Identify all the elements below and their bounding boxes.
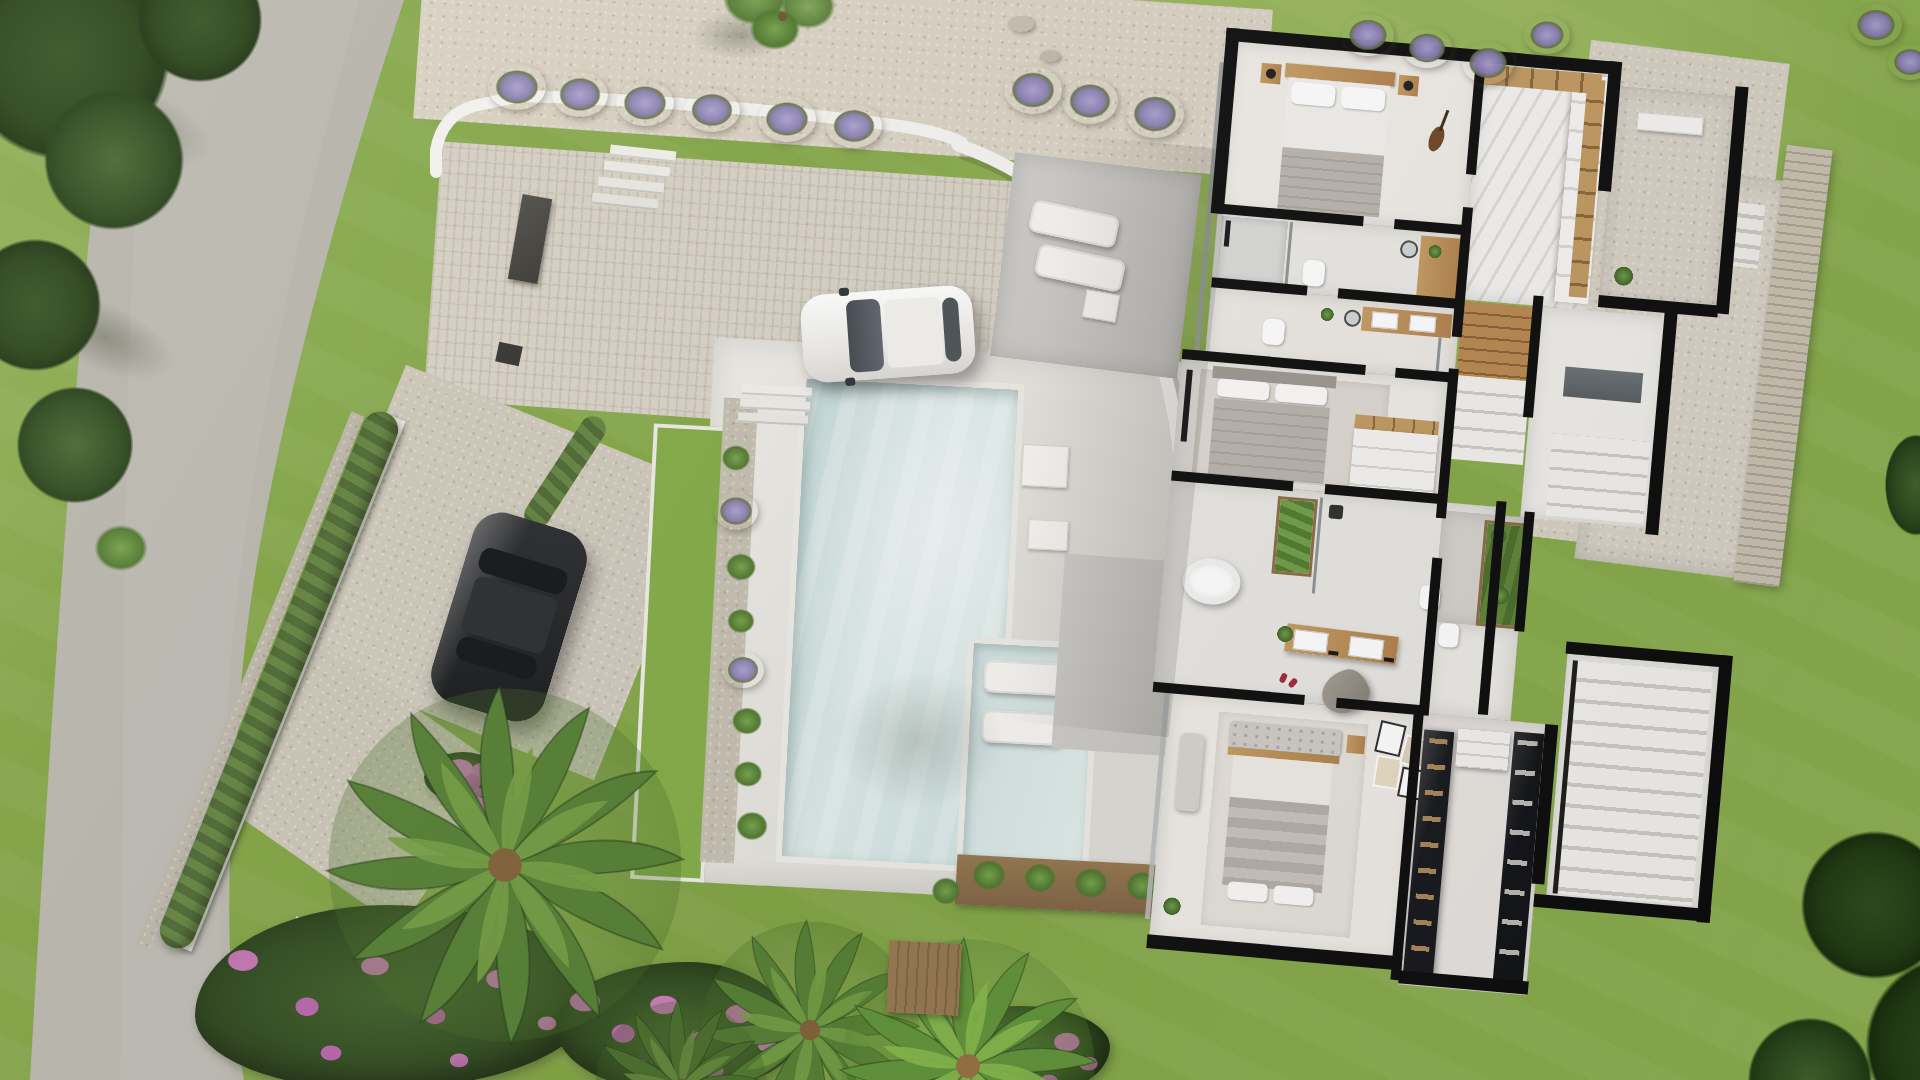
- lavender-bush: [1342, 14, 1394, 56]
- duvet: [1277, 147, 1384, 218]
- closet-dresser: [1455, 729, 1510, 771]
- lavender-bush: [552, 72, 608, 117]
- pillow: [1274, 383, 1327, 405]
- toilet: [1302, 259, 1326, 287]
- fan-palm: [828, 926, 1108, 1080]
- lavender-bush: [1524, 16, 1570, 54]
- olive-tree: [700, 0, 860, 90]
- cushion: [1273, 885, 1314, 906]
- lavender-bush: [1004, 66, 1062, 114]
- bed1: [1273, 63, 1396, 222]
- house: [1053, 10, 1897, 1072]
- lavender-bush: [1462, 42, 1514, 84]
- duvet: [1222, 797, 1329, 893]
- bidet: [1438, 622, 1460, 648]
- conifer-tree: [0, 370, 150, 520]
- aerial-villa-render: [0, 0, 1920, 1080]
- lavender-bush: [1850, 4, 1902, 46]
- nightstand: [1346, 735, 1366, 755]
- lavender-bush: [684, 88, 740, 132]
- car-mirror: [839, 288, 850, 297]
- lavender-bush: [1402, 28, 1452, 68]
- sink: [1348, 636, 1384, 660]
- sink: [1409, 315, 1436, 333]
- wood-deck: [886, 940, 962, 1016]
- car-roof: [884, 296, 945, 368]
- faucet: [1384, 657, 1394, 662]
- rock: [1040, 50, 1060, 62]
- ivy-wall: [1271, 496, 1318, 577]
- guitar-neck: [1439, 110, 1450, 132]
- car-windshield: [846, 299, 885, 373]
- palm-tree: [586, 992, 776, 1080]
- stairs-upper-wood: [1456, 301, 1536, 381]
- bush: [84, 516, 158, 580]
- bed2: [1204, 366, 1337, 486]
- lavender-bush: [826, 104, 882, 148]
- pillow: [1340, 86, 1386, 112]
- stairs-atrium: [1546, 434, 1651, 524]
- rock: [1008, 16, 1034, 32]
- pillow: [1290, 82, 1336, 108]
- lavender-bush: [488, 64, 546, 110]
- toilet: [1261, 318, 1285, 346]
- lavender-bush: [616, 80, 674, 126]
- master-bed: [1214, 721, 1342, 914]
- lavender-bush: [1126, 90, 1184, 138]
- stairs-lower: [1553, 660, 1713, 905]
- lavender-bush: [758, 96, 816, 142]
- white-car: [799, 284, 977, 384]
- cushion: [1227, 881, 1268, 902]
- stairs-upper-white: [1449, 375, 1530, 465]
- sink: [1293, 629, 1329, 653]
- pillow: [1217, 378, 1270, 400]
- car-mirror: [845, 377, 856, 386]
- shower-head: [1328, 504, 1343, 519]
- sink: [1371, 311, 1398, 329]
- duvet: [1208, 398, 1330, 484]
- faucet: [1328, 650, 1338, 655]
- dresser: [1349, 428, 1438, 493]
- lavender-bush: [1062, 78, 1118, 124]
